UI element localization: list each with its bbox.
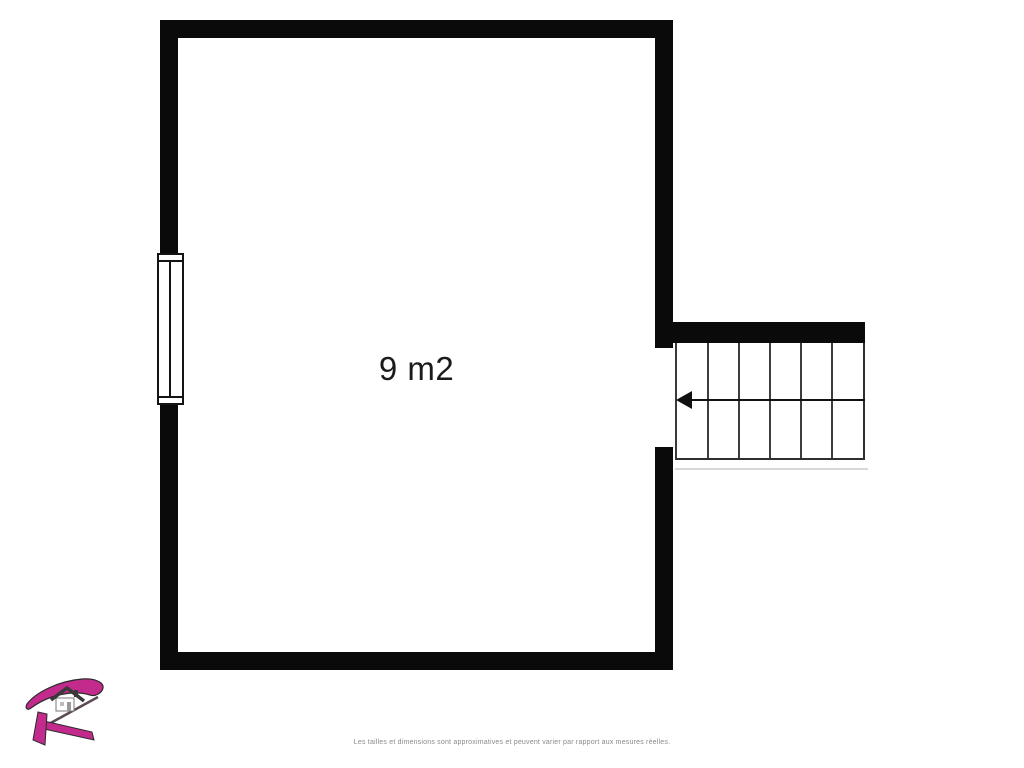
room-area-label: 9 m2 (178, 352, 655, 385)
stair-direction-line (690, 399, 865, 401)
stairs-top-wall (673, 322, 865, 343)
wall-right-upper (655, 20, 673, 348)
stair-direction-arrow-icon (676, 391, 692, 409)
floor-plan-canvas: 9 m2 Les tailles et dimensions sont appr… (0, 0, 1024, 768)
window-mullion (169, 262, 171, 396)
wall-bottom (160, 652, 673, 670)
wall-top (160, 20, 673, 38)
disclaimer-text: Les tailles et dimensions sont approxima… (0, 737, 1024, 749)
wall-left-upper (160, 20, 178, 253)
stair-treads (675, 343, 865, 460)
stair-shadow-line (675, 468, 868, 470)
wall-right-lower (655, 447, 673, 670)
wall-left-lower (160, 405, 178, 670)
window-rail-bottom (159, 396, 182, 398)
